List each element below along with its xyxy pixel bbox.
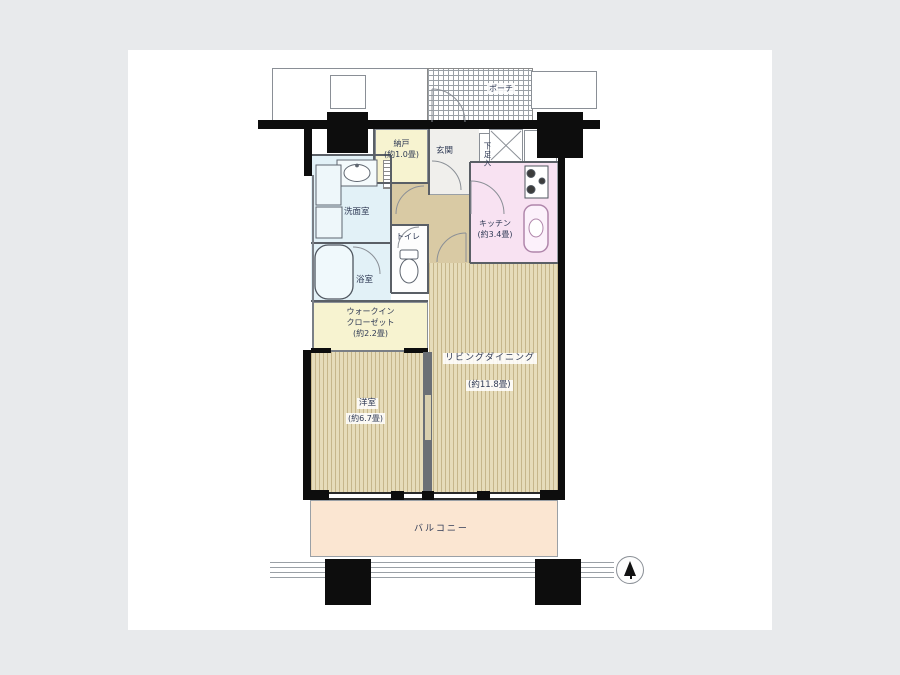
wall-bottom-mullion-3 — [477, 491, 490, 500]
label-living-dining-size: (約11.8畳) — [466, 380, 513, 391]
kitchen-size: (約3.4畳) — [478, 229, 513, 240]
wall-bath-bottom — [311, 300, 428, 302]
wic-size: (約2.2畳) — [353, 328, 388, 339]
label-storage: 納戸 (約1.0畳) — [375, 138, 428, 160]
wic-slider-rail — [331, 350, 404, 352]
hallway-upper — [391, 183, 428, 225]
label-bedroom: 洋室 — [357, 398, 378, 409]
wall-bath-divider — [311, 242, 391, 244]
wall-right — [558, 153, 565, 500]
floor-plan-image: ポーチ 納戸 (約1.0畳) 玄関 下足入 キッチン (約3.4畳) 洗面室 浴… — [0, 0, 900, 675]
wall-left-upper — [304, 120, 312, 176]
hallway-lower — [428, 225, 470, 265]
corridor-right-box — [531, 71, 597, 109]
label-bedroom-size: (約6.7畳) — [346, 413, 385, 424]
storage-name: 納戸 — [394, 138, 410, 149]
room-bathroom — [311, 243, 391, 302]
hallway-mid — [428, 195, 470, 225]
label-balcony: バルコニー — [414, 524, 469, 535]
north-arrow-icon — [616, 556, 644, 584]
room-living-dining — [429, 263, 558, 493]
label-bathroom: 浴室 — [356, 275, 373, 286]
wall-bottom-mullion-2 — [422, 491, 434, 500]
wall-storage-right — [428, 129, 430, 195]
wall-bottom-mullion-1 — [391, 491, 404, 500]
wall-storage-bottom — [375, 182, 429, 184]
north-needle — [624, 561, 636, 576]
wall-bottom-corner-left — [303, 490, 329, 500]
north-needle-stem — [630, 575, 632, 579]
label-porch: ポーチ — [487, 83, 515, 94]
column-top-left — [327, 112, 368, 153]
wall-left-lower — [303, 350, 311, 500]
label-walk-in-closet: ウォークイン クローゼット (約2.2畳) — [313, 306, 428, 339]
column-bottom-left — [325, 559, 371, 605]
shaft-square — [330, 75, 366, 109]
room-kitchen — [470, 162, 558, 263]
wic-line2: クローゼット — [347, 317, 395, 328]
label-entrance: 玄関 — [436, 146, 453, 157]
label-washroom: 洗面室 — [344, 207, 370, 218]
column-bottom-right — [535, 559, 581, 605]
storage-size: (約1.0畳) — [384, 149, 419, 160]
wall-toilet-top — [391, 224, 429, 226]
column-top-right — [537, 112, 583, 158]
label-shoe-cabinet: 下足入 — [482, 142, 493, 168]
meter-box — [489, 129, 523, 162]
wall-kitchen-bottom — [470, 262, 558, 264]
kitchen-name: キッチン — [479, 218, 511, 229]
wic-line1: ウォークイン — [347, 306, 395, 317]
wall-toilet-right — [427, 225, 429, 293]
bedroom-ld-sliding-door — [425, 395, 431, 440]
window-bottom — [311, 492, 558, 500]
label-toilet: トイレ — [396, 231, 420, 242]
porch-area — [427, 68, 533, 122]
label-living-dining: リビングダイニング — [443, 353, 537, 364]
wall-bottom-corner-right — [540, 490, 565, 500]
label-kitchen: キッチン (約3.4畳) — [466, 218, 524, 240]
wall-kitchen-left — [469, 162, 471, 263]
wic-slider-end-left — [311, 348, 331, 353]
wall-toilet-bottom — [391, 292, 429, 294]
